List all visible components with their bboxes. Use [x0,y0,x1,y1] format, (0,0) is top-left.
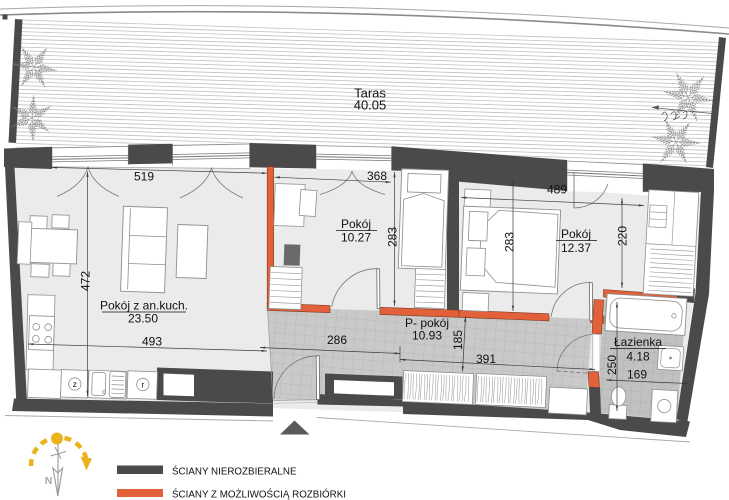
svg-text:Pokój z an.kuch.: Pokój z an.kuch. [100,299,188,313]
svg-text:519: 519 [134,170,154,184]
svg-text:391: 391 [476,352,496,366]
svg-text:489: 489 [547,183,567,197]
svg-text:10.93: 10.93 [412,329,442,343]
svg-text:283: 283 [386,227,400,247]
svg-text:10.27: 10.27 [341,231,371,245]
svg-text:N: N [45,475,53,487]
svg-text:368: 368 [367,169,387,183]
svg-text:ŚCIANY NIEROZBIERALNE: ŚCIANY NIEROZBIERALNE [172,466,297,478]
svg-text:Łazienka: Łazienka [614,335,662,349]
svg-text:250: 250 [605,355,619,375]
svg-text:169: 169 [627,368,647,382]
svg-text:Pokój: Pokój [341,217,371,231]
svg-text:ŚCIANY Z MOŻLIWOŚCIĄ ROZBIÓRKI: ŚCIANY Z MOŻLIWOŚCIĄ ROZBIÓRKI [172,489,346,500]
svg-text:493: 493 [142,335,162,349]
svg-text:Pokój: Pokój [561,227,591,241]
svg-text:283: 283 [503,232,517,252]
svg-text:23.50: 23.50 [128,312,158,326]
svg-text:220: 220 [616,226,630,246]
svg-text:185: 185 [451,330,465,350]
svg-text:4.18: 4.18 [626,350,650,364]
svg-text:472: 472 [79,271,93,291]
svg-text:z: z [73,379,77,389]
svg-text:286: 286 [327,333,347,347]
svg-text:12.37: 12.37 [561,241,591,255]
svg-text:r: r [141,380,144,390]
svg-text:40.05: 40.05 [354,98,387,113]
